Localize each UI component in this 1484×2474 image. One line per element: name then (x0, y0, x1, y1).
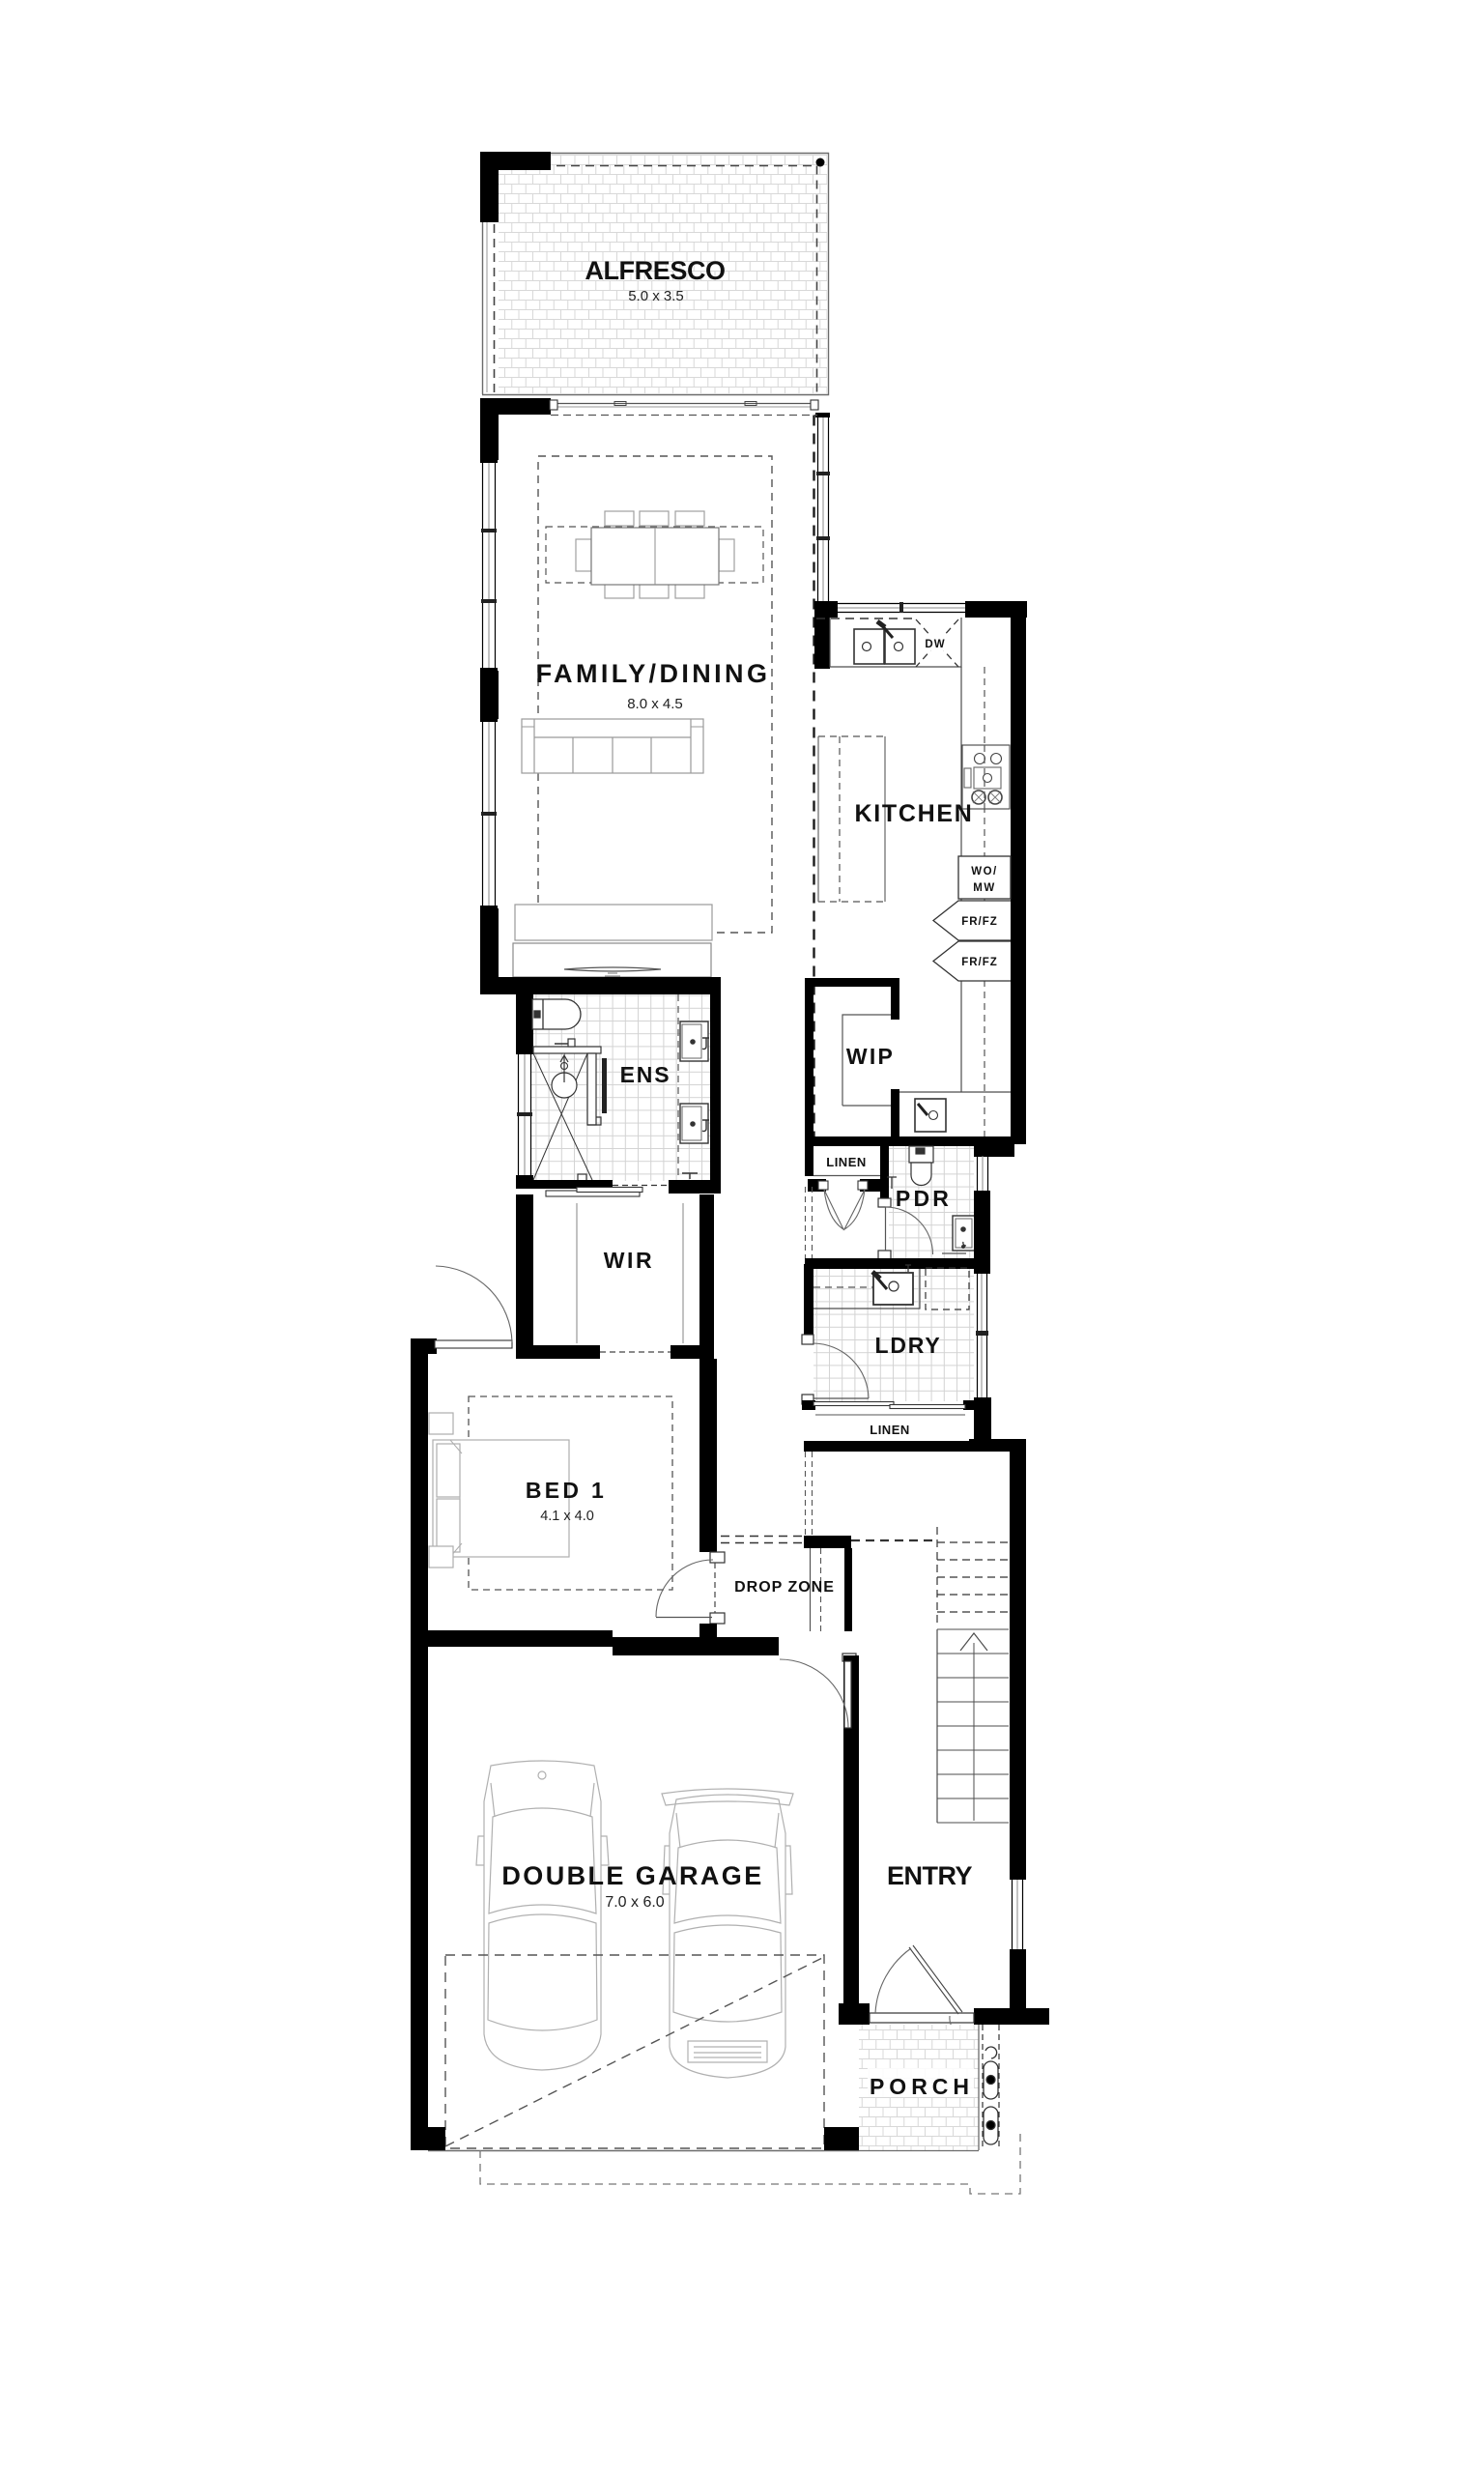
svg-text:PORCH: PORCH (870, 2074, 974, 2099)
svg-text:ALFRESCO: ALFRESCO (585, 256, 725, 285)
svg-text:KITCHEN: KITCHEN (854, 800, 973, 827)
svg-text:WIR: WIR (604, 1248, 655, 1273)
svg-text:PDR: PDR (896, 1186, 952, 1211)
svg-text:5.0 x 3.5: 5.0 x 3.5 (628, 288, 684, 304)
svg-text:DROP ZONE: DROP ZONE (734, 1579, 835, 1596)
svg-text:FR/FZ: FR/FZ (961, 957, 998, 968)
svg-text:ENTRY: ENTRY (887, 1861, 972, 1890)
svg-text:WIP: WIP (846, 1044, 895, 1069)
svg-text:DOUBLE GARAGE: DOUBLE GARAGE (501, 1861, 763, 1890)
svg-text:LINEN: LINEN (826, 1155, 867, 1169)
svg-text:MW: MW (973, 882, 995, 894)
svg-text:DW: DW (925, 639, 945, 650)
svg-text:WO/: WO/ (971, 866, 998, 877)
svg-text:LINEN: LINEN (870, 1423, 910, 1437)
svg-text:BED 1: BED 1 (526, 1478, 607, 1503)
svg-text:LDRY: LDRY (875, 1333, 942, 1358)
svg-text:8.0 x 4.5: 8.0 x 4.5 (627, 696, 683, 712)
svg-text:7.0 x 6.0: 7.0 x 6.0 (605, 1894, 664, 1911)
svg-text:FR/FZ: FR/FZ (961, 916, 998, 928)
svg-text:4.1 x 4.0: 4.1 x 4.0 (540, 1509, 594, 1524)
svg-text:ENS: ENS (620, 1062, 671, 1087)
svg-text:FAMILY/DINING: FAMILY/DINING (536, 659, 771, 688)
